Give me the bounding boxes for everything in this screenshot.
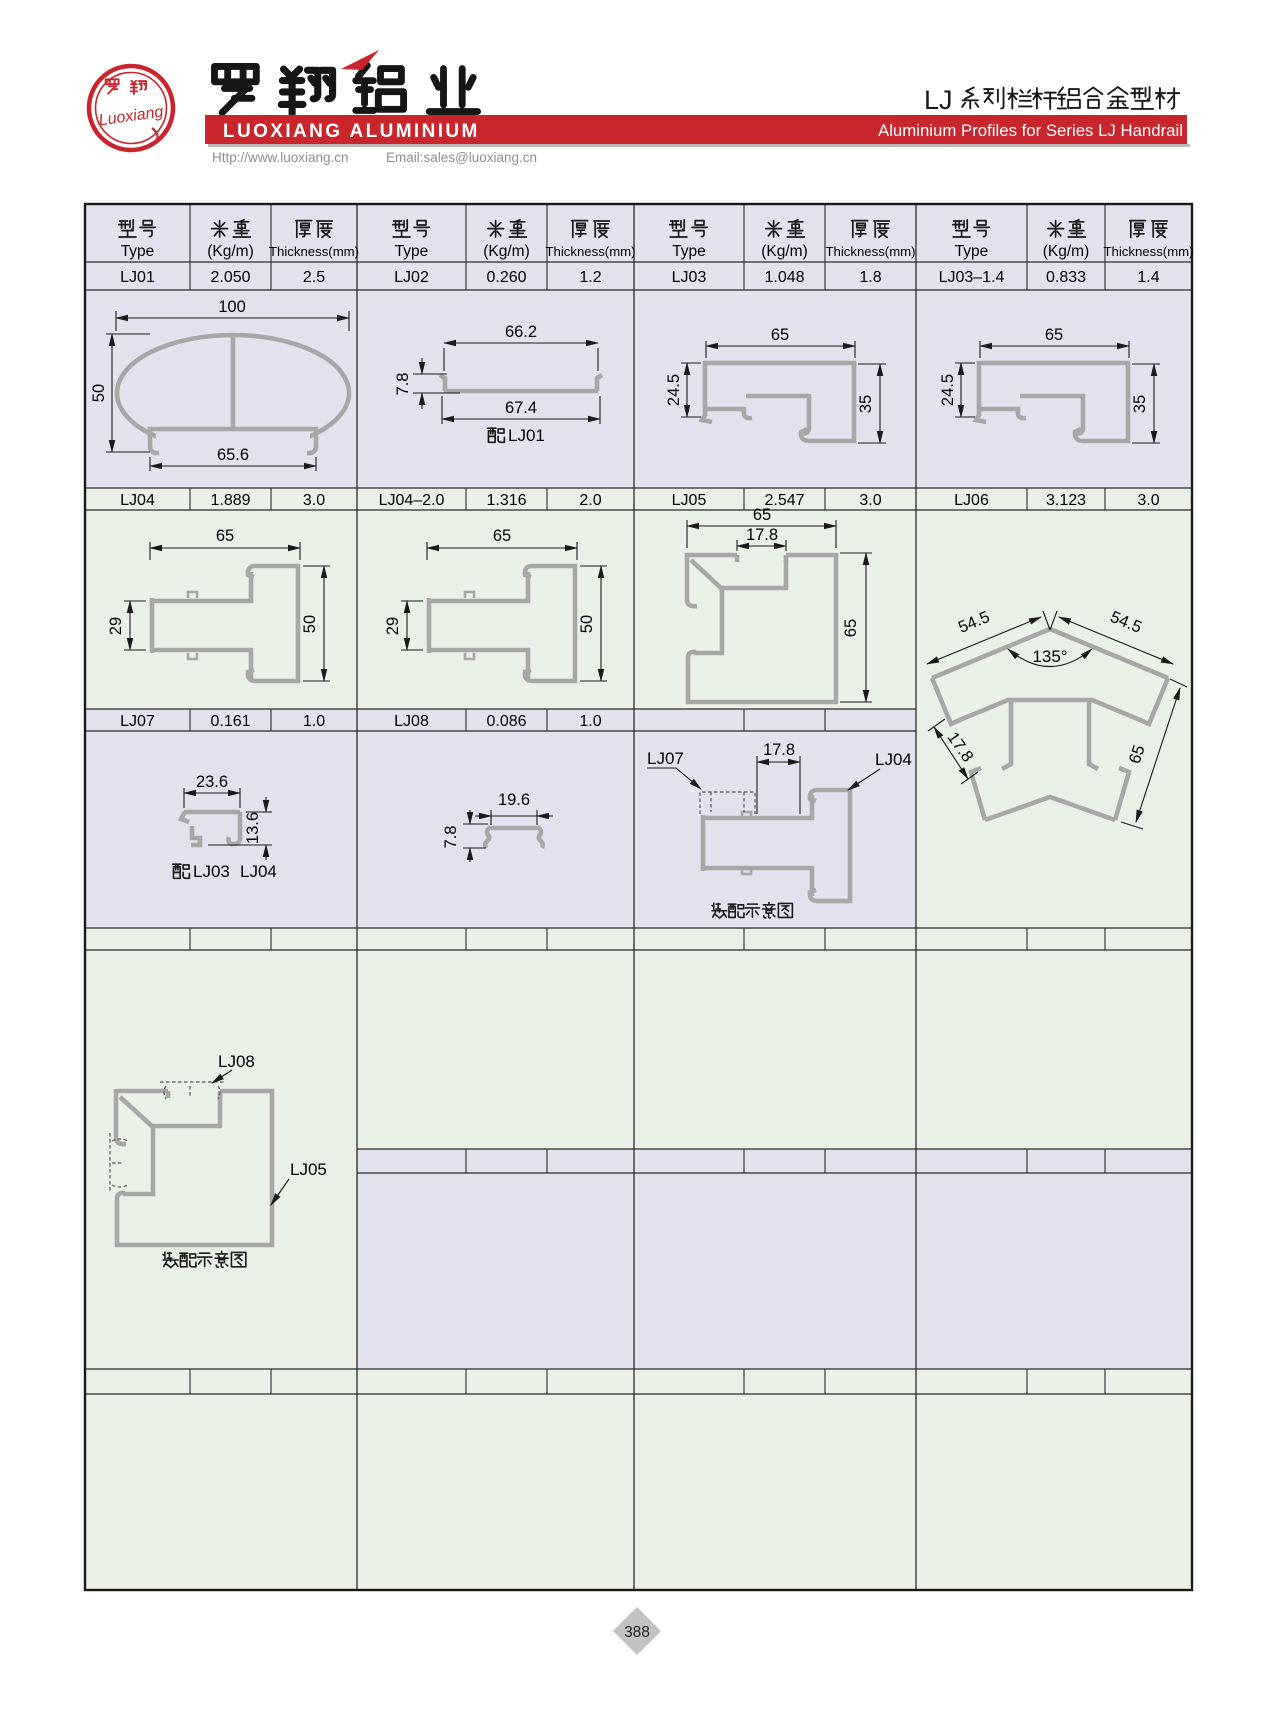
svg-text:LJ07: LJ07: [647, 749, 684, 768]
svg-text:100: 100: [218, 298, 246, 316]
svg-text:LJ06: LJ06: [954, 492, 989, 509]
svg-text:Type: Type: [395, 243, 429, 260]
svg-text:0.086: 0.086: [486, 713, 526, 730]
svg-text:1.0: 1.0: [579, 713, 601, 730]
svg-text:13.6: 13.6: [244, 812, 262, 844]
svg-text:Email:sales@luoxiang.cn: Email:sales@luoxiang.cn: [386, 150, 537, 165]
svg-text:LJ07: LJ07: [120, 713, 155, 730]
svg-text:3.0: 3.0: [303, 492, 325, 509]
svg-text:35: 35: [857, 395, 875, 413]
svg-text:LJ04: LJ04: [240, 862, 277, 881]
svg-text:LJ08: LJ08: [394, 713, 429, 730]
svg-text:(Kg/m): (Kg/m): [207, 243, 254, 260]
svg-text:Thickness(mm): Thickness(mm): [1103, 244, 1193, 259]
svg-text:135°: 135°: [1032, 647, 1067, 666]
svg-text:3.0: 3.0: [859, 492, 881, 509]
svg-text:Thickness(mm): Thickness(mm): [545, 244, 635, 259]
svg-text:65: 65: [771, 326, 789, 344]
svg-text:388: 388: [624, 1624, 650, 1641]
svg-text:Thickness(mm): Thickness(mm): [269, 244, 359, 259]
svg-text:LJ: LJ: [924, 85, 953, 115]
svg-text:0.833: 0.833: [1046, 269, 1086, 286]
svg-text:Type: Type: [672, 243, 706, 260]
svg-text:1.889: 1.889: [210, 492, 250, 509]
svg-text:Aluminium Profiles for Series: Aluminium Profiles for Series LJ Handrai…: [878, 121, 1183, 140]
svg-text:LJ04: LJ04: [875, 750, 912, 769]
svg-text:1.4: 1.4: [1137, 269, 1159, 286]
svg-text:19.6: 19.6: [498, 791, 530, 809]
svg-text:1.316: 1.316: [486, 492, 526, 509]
svg-text:1.0: 1.0: [303, 713, 325, 730]
svg-text:65.6: 65.6: [217, 446, 249, 464]
svg-text:65: 65: [753, 506, 771, 524]
svg-text:Type: Type: [955, 243, 989, 260]
svg-text:17.8: 17.8: [746, 526, 778, 544]
svg-text:0.161: 0.161: [210, 713, 250, 730]
svg-text:3.0: 3.0: [1137, 492, 1159, 509]
svg-text:1.8: 1.8: [859, 269, 881, 286]
svg-text:2.0: 2.0: [579, 492, 601, 509]
svg-text:2.5: 2.5: [303, 269, 325, 286]
svg-text:1.048: 1.048: [764, 269, 804, 286]
svg-text:(Kg/m): (Kg/m): [483, 243, 530, 260]
svg-text:LJ02: LJ02: [394, 269, 429, 286]
svg-text:66.2: 66.2: [505, 323, 537, 341]
svg-text:LJ04–2.0: LJ04–2.0: [379, 492, 445, 509]
svg-text:29: 29: [107, 617, 125, 635]
svg-text:LUOXIANG ALUMINIUM: LUOXIANG ALUMINIUM: [223, 121, 480, 142]
svg-text:67.4: 67.4: [505, 399, 537, 417]
svg-text:0.260: 0.260: [486, 269, 526, 286]
svg-text:LJ08: LJ08: [218, 1052, 255, 1071]
svg-text:LJ04: LJ04: [120, 492, 155, 509]
svg-text:7.8: 7.8: [442, 826, 460, 849]
svg-text:LJ01: LJ01: [508, 426, 545, 445]
svg-text:Http://www.luoxiang.cn: Http://www.luoxiang.cn: [212, 150, 349, 165]
svg-text:(Kg/m): (Kg/m): [761, 243, 808, 260]
svg-text:23.6: 23.6: [196, 773, 228, 791]
svg-text:3.123: 3.123: [1046, 492, 1086, 509]
svg-text:2.050: 2.050: [210, 269, 250, 286]
svg-text:LJ03–1.4: LJ03–1.4: [939, 269, 1005, 286]
svg-text:1.2: 1.2: [579, 269, 601, 286]
svg-text:Type: Type: [121, 243, 155, 260]
svg-text:LJ01: LJ01: [120, 269, 155, 286]
svg-text:24.5: 24.5: [665, 374, 683, 406]
svg-text:65: 65: [216, 527, 234, 545]
svg-text:LJ03: LJ03: [672, 269, 707, 286]
svg-text:LJ05: LJ05: [672, 492, 707, 509]
svg-text:17.8: 17.8: [763, 741, 795, 759]
svg-text:LJ05: LJ05: [290, 1160, 327, 1179]
svg-text:(Kg/m): (Kg/m): [1043, 243, 1090, 260]
svg-text:Thickness(mm): Thickness(mm): [825, 244, 915, 259]
svg-text:LJ03: LJ03: [193, 862, 230, 881]
svg-text:50: 50: [301, 615, 319, 633]
svg-text:65: 65: [842, 619, 860, 637]
svg-text:7.8: 7.8: [394, 373, 412, 396]
svg-text:50: 50: [90, 384, 108, 402]
